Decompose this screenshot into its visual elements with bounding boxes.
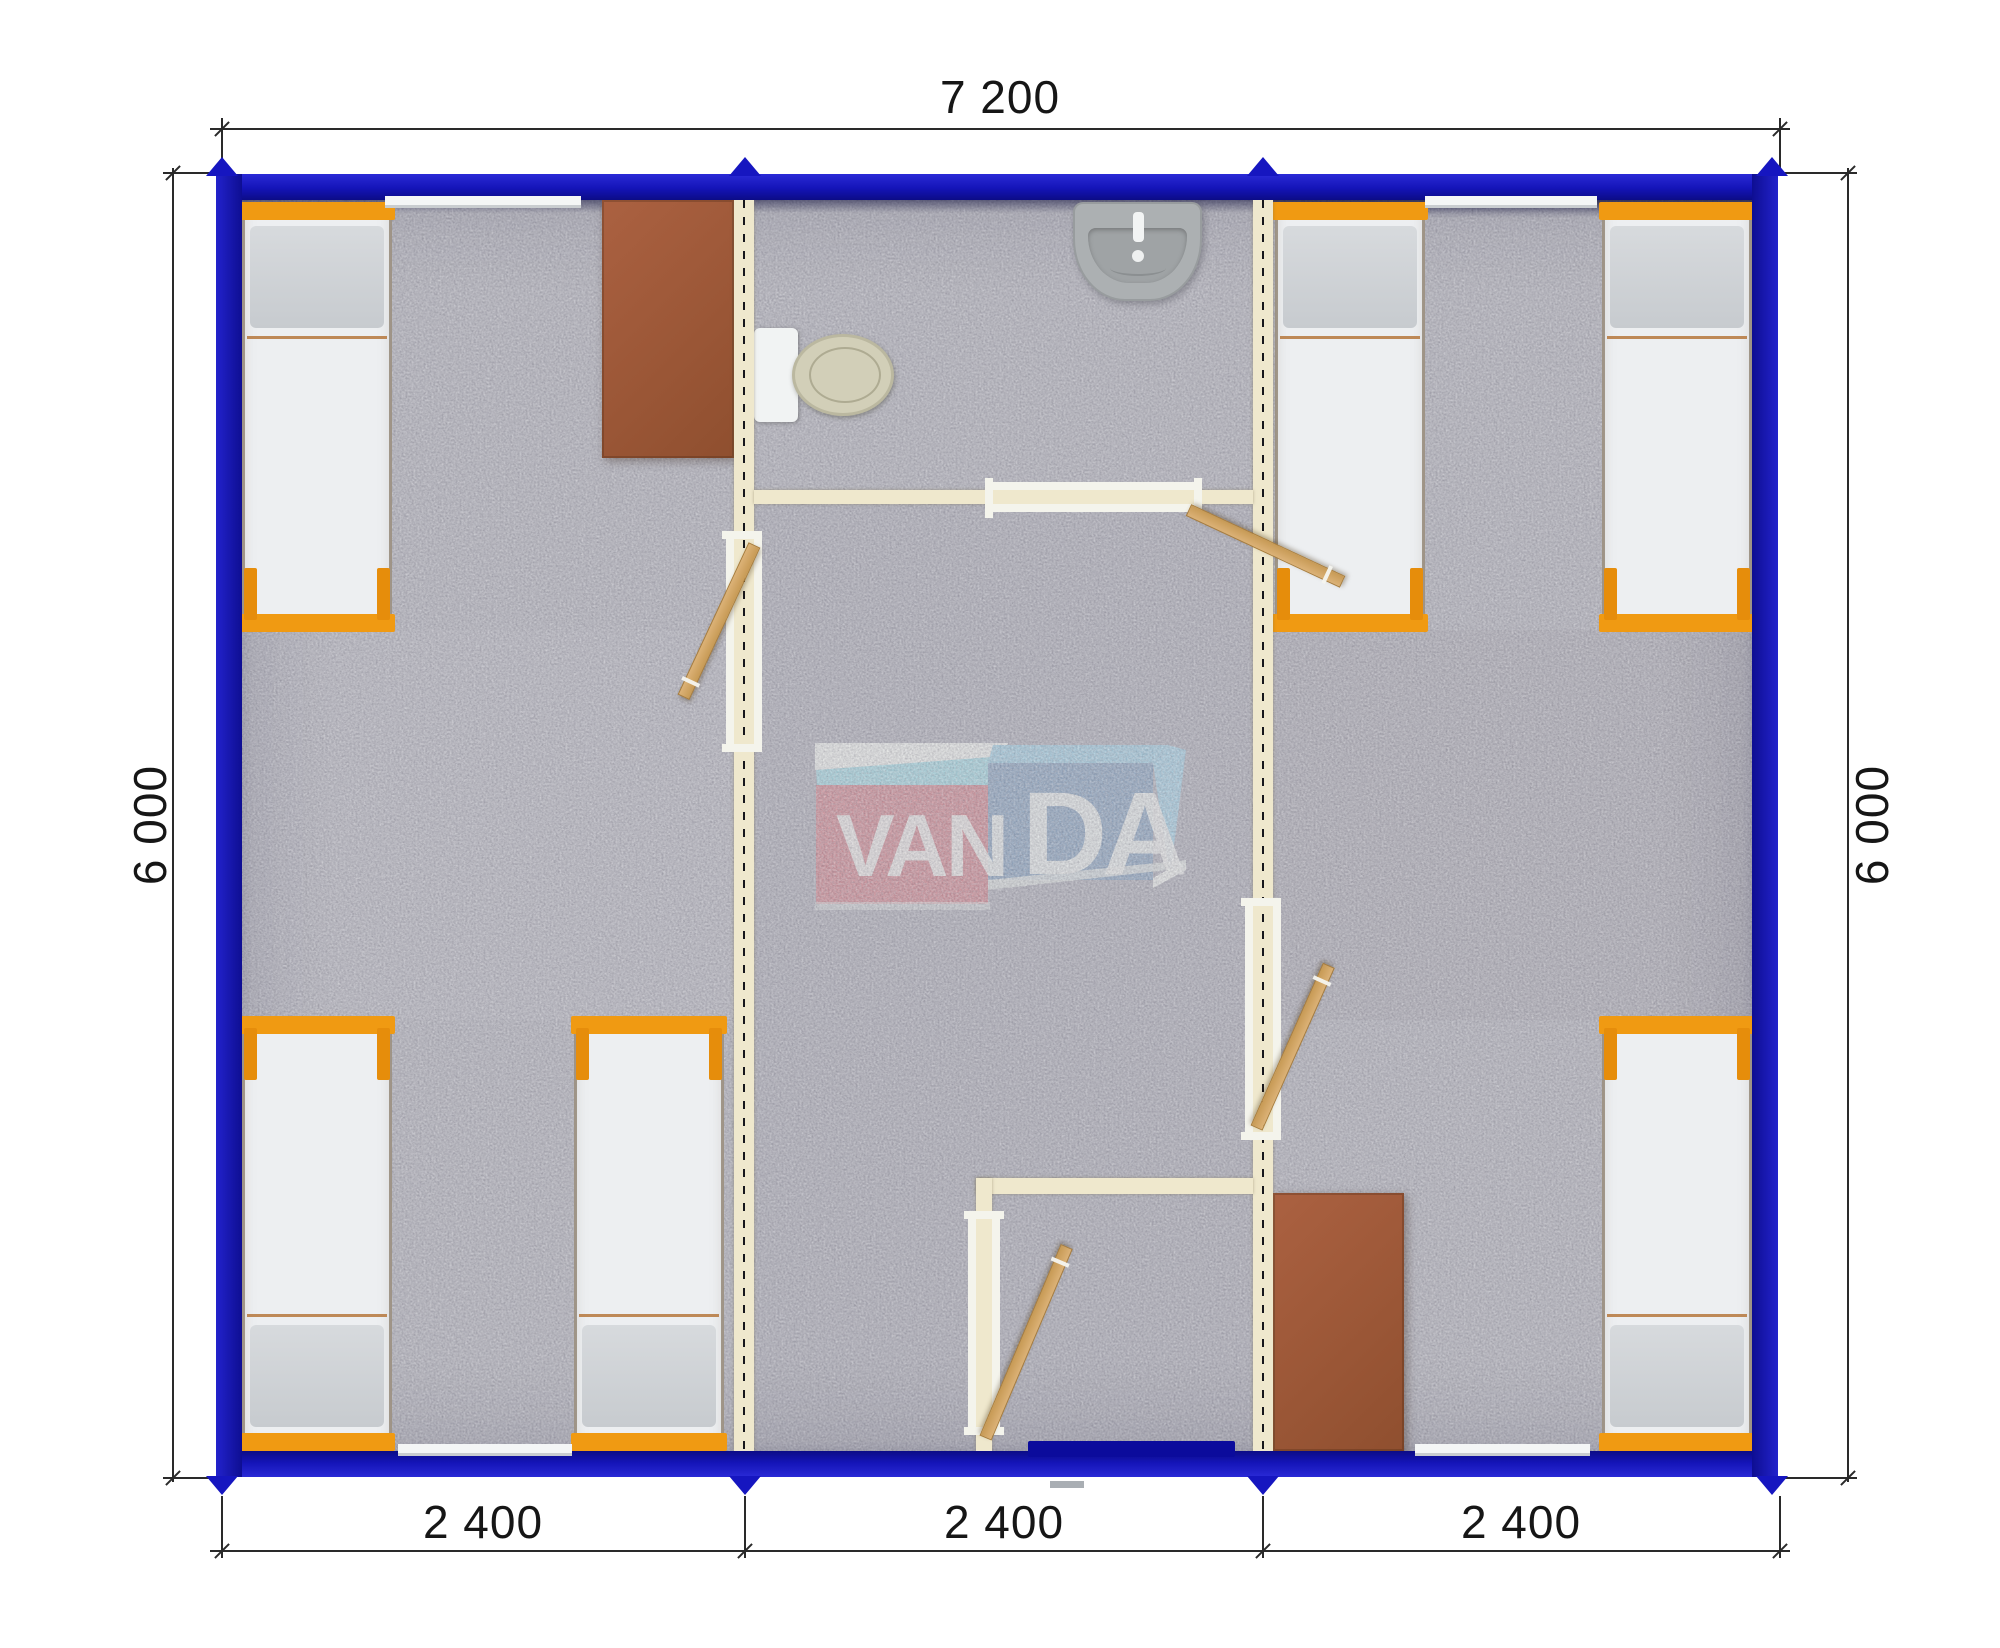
wall-peak-bottom-right	[1756, 1476, 1788, 1495]
bed-head-bar	[571, 1433, 727, 1451]
toilet	[752, 326, 898, 424]
logo-red-base-strip	[815, 902, 990, 910]
bed-post	[1604, 1028, 1617, 1080]
dim-label-bottom-2: 2 400	[944, 1495, 1064, 1549]
doorway-left-shoulder-bottom	[722, 744, 762, 752]
sink-faucet	[1133, 212, 1144, 242]
partition-left-module	[734, 200, 754, 1451]
vestibule-wall-horizontal	[976, 1178, 1253, 1194]
bed-blanket-line	[1280, 336, 1420, 339]
bed-right-room-top-2	[1602, 202, 1752, 632]
logo-blue-top-face	[988, 745, 1168, 763]
doorway-bathroom-jamb-south	[992, 504, 1195, 512]
wall-left	[216, 174, 242, 1477]
entry-door	[1028, 1441, 1235, 1457]
dim-label-bottom-3: 2 400	[1461, 1495, 1581, 1549]
bed-post	[377, 1028, 390, 1080]
wall-peak-top-mid-right	[1247, 157, 1279, 176]
floor-tone-right	[1273, 630, 1752, 1020]
bed-post	[377, 568, 390, 620]
logo-text-van: VAN	[836, 796, 1006, 895]
bed-blanket-line	[247, 1314, 387, 1317]
bed-foot-bar	[1272, 614, 1428, 632]
doorway-right-jamb-west	[1245, 905, 1253, 1133]
bed-left-room-bottom-2	[574, 1016, 724, 1451]
bed-foot-bar	[1599, 1016, 1755, 1034]
doorway-bathroom-jamb-north	[992, 482, 1195, 490]
floor-tone-middle	[754, 504, 1253, 1451]
bed-head-bar	[1599, 202, 1755, 220]
sink	[1073, 202, 1202, 301]
toilet-seat-line	[809, 347, 881, 403]
bed-foot-bar	[571, 1016, 727, 1034]
bed-left-room-top	[242, 202, 392, 632]
bed-head-bar	[1272, 202, 1428, 220]
bed-post	[244, 1028, 257, 1080]
floor-plan-canvas: VAN DA	[0, 0, 2000, 1648]
bathroom-wall	[754, 490, 1253, 504]
bed-post	[709, 1028, 722, 1080]
bed-post	[244, 568, 257, 620]
wall-peak-top-right	[1756, 157, 1788, 176]
dim-line-top	[210, 128, 1790, 130]
bed-right-room-bottom	[1602, 1016, 1752, 1451]
bed-pillow	[582, 1325, 716, 1427]
bed-blanket-line	[247, 336, 387, 339]
wall-peak-bottom-left	[206, 1476, 238, 1495]
wall-peak-top-mid-left	[729, 157, 761, 176]
doorway-right-shoulder-top	[1241, 898, 1281, 906]
dim-label-bottom-1: 2 400	[423, 1495, 543, 1549]
bed-head-bar	[1599, 1433, 1755, 1451]
window-bottom-left	[398, 1444, 572, 1456]
doorway-vestibule-jamb-west	[968, 1218, 976, 1428]
toilet-bowl	[792, 334, 894, 416]
vanda-logo-watermark: VAN DA	[806, 736, 1198, 920]
partition-right-module	[1253, 200, 1273, 1451]
window-bottom-right	[1415, 1444, 1590, 1456]
bed-left-room-bottom-1	[242, 1016, 392, 1451]
bed-head-bar	[239, 202, 395, 220]
dim-label-left: 6 000	[123, 765, 177, 885]
doorway-left-jamb-east	[754, 538, 762, 745]
wall-peak-bottom-mid-left	[729, 1476, 761, 1495]
bed-foot-bar	[1599, 614, 1755, 632]
bed-post	[1604, 568, 1617, 620]
wall-peak-top-left	[206, 157, 238, 176]
bed-blanket-line	[1607, 1314, 1747, 1317]
desk-right-room	[1273, 1193, 1404, 1451]
window-top-right	[1425, 196, 1597, 208]
doorway-vestibule-shoulder-top	[964, 1211, 1004, 1219]
bed-post	[1737, 568, 1750, 620]
dim-label-right: 6 000	[1845, 765, 1899, 885]
bed-pillow	[1610, 1325, 1744, 1427]
bed-post	[1410, 568, 1423, 620]
bed-post	[1737, 1028, 1750, 1080]
wall-right	[1752, 174, 1778, 1477]
doorway-left-shoulder-top	[722, 531, 762, 539]
dim-label-top: 7 200	[940, 70, 1060, 124]
logo-text-da: DA	[1022, 768, 1185, 900]
bed-pillow	[1283, 226, 1417, 328]
wall-peak-bottom-mid-right	[1247, 1476, 1279, 1495]
dim-line-bottom	[210, 1550, 1790, 1552]
entry-step	[1050, 1481, 1084, 1488]
doorway-left-jamb-west	[726, 538, 734, 745]
bed-post	[1277, 568, 1290, 620]
doorway-bathroom-shoulder-west	[985, 478, 993, 518]
sink-overflow-line	[1110, 260, 1166, 276]
window-top-left	[385, 196, 581, 208]
doorway-right-shoulder-bottom	[1241, 1132, 1281, 1140]
floor-tone-left	[242, 630, 734, 1020]
bed-head-bar	[239, 1433, 395, 1451]
bed-blanket-line	[1607, 336, 1747, 339]
bed-pillow	[250, 1325, 384, 1427]
bed-foot-bar	[239, 1016, 395, 1034]
bed-blanket-line	[579, 1314, 719, 1317]
bed-post	[576, 1028, 589, 1080]
desk-left-room	[602, 200, 734, 458]
bed-foot-bar	[239, 614, 395, 632]
bed-pillow	[250, 226, 384, 328]
bed-pillow	[1610, 226, 1744, 328]
